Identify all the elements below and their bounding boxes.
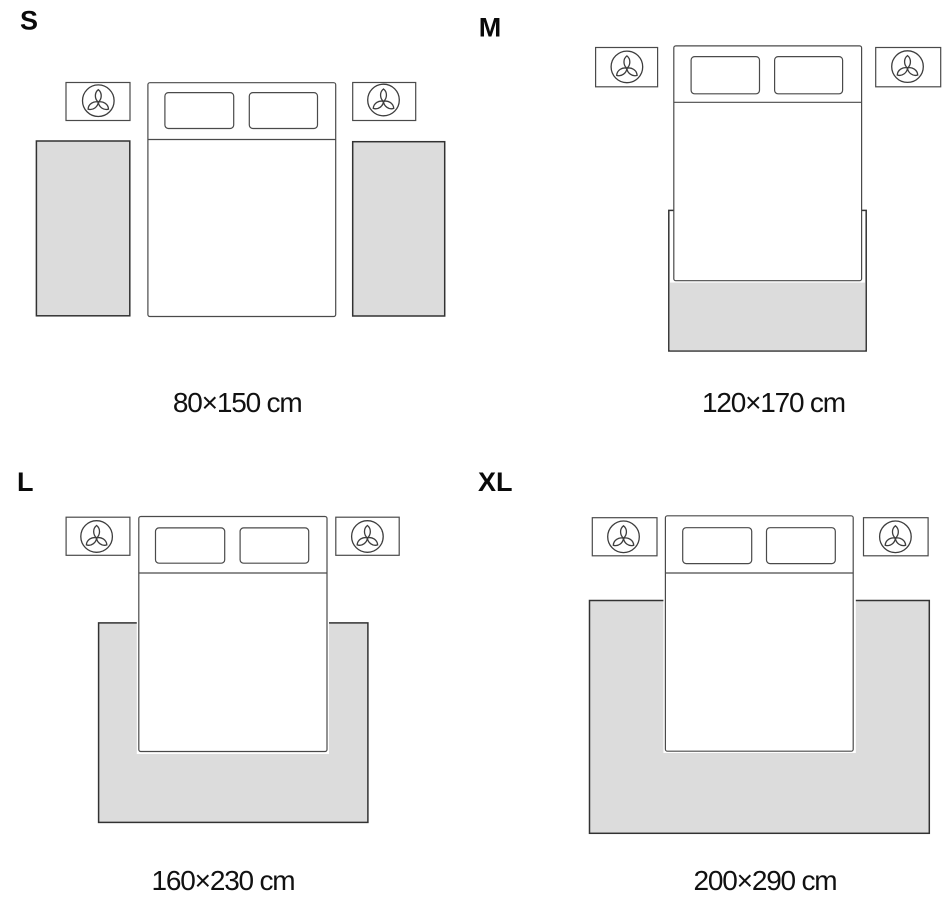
- svg-text:120×170 cm: 120×170 cm: [702, 387, 845, 418]
- svg-text:200×290 cm: 200×290 cm: [694, 865, 837, 896]
- svg-text:XL: XL: [478, 467, 513, 497]
- svg-text:S: S: [20, 6, 38, 36]
- svg-text:80×150 cm: 80×150 cm: [173, 387, 302, 418]
- svg-text:160×230 cm: 160×230 cm: [152, 865, 295, 896]
- svg-text:L: L: [17, 467, 34, 497]
- svg-text:M: M: [479, 12, 502, 42]
